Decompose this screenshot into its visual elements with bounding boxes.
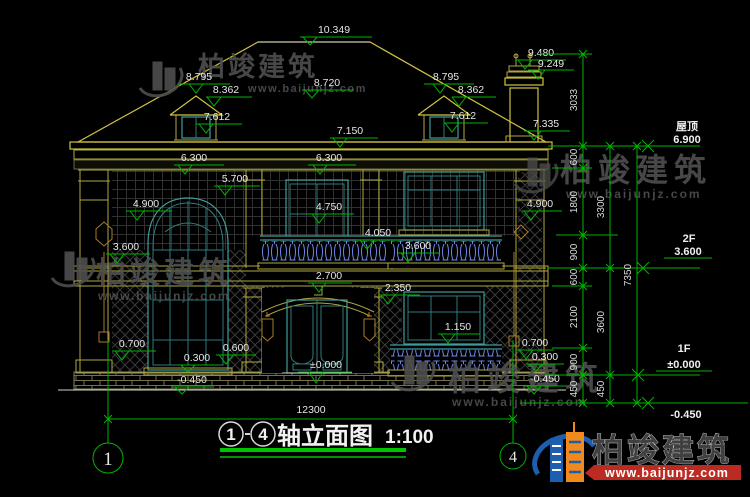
- dim-dormer-r-sill: 7.612: [450, 110, 476, 122]
- dim-dormer-r-top: 8.795: [433, 71, 459, 83]
- dim-f1-sill: 1.150: [445, 321, 471, 333]
- chain-450a: 450: [569, 380, 580, 397]
- page-title: 轴立面图: [277, 422, 373, 450]
- chain-1800: 1800: [569, 190, 580, 213]
- level-roof: 屋顶 6.900: [585, 120, 701, 152]
- logo-brand: 柏竣建筑: [592, 432, 732, 468]
- level-2f-label: 2F: [683, 233, 696, 245]
- level-1f-label: 1F: [678, 343, 691, 355]
- watermark-url: www.baijunjz.com: [247, 83, 367, 95]
- dim-left-ground: -0.450: [177, 374, 207, 386]
- chain-600a: 600: [569, 148, 580, 165]
- balcony-center: [258, 236, 392, 269]
- chain-3300: 3300: [596, 195, 607, 218]
- watermark-brand: 柏竣建筑: [448, 360, 604, 397]
- chain-900b: 900: [569, 353, 580, 370]
- window-1f-right: [404, 292, 484, 344]
- dim-left-sill: 0.700: [119, 338, 145, 350]
- eaves-band: [70, 142, 552, 170]
- dim-chimney-cap: 9.249: [538, 58, 564, 70]
- axis-bubble-1: 1: [93, 424, 123, 473]
- watermark-brand: 柏竣建筑: [96, 256, 232, 290]
- dim-right-head: 4.900: [527, 198, 553, 210]
- dim-f1-head: 2.350: [385, 282, 411, 294]
- watermark-url: www.baijunjz.com: [97, 289, 230, 303]
- chain-3033: 3033: [569, 88, 580, 111]
- title-block: 1 4 轴立面图 1:100: [219, 422, 434, 457]
- axis-number: 4: [509, 449, 517, 466]
- logo-tower-orange-icon: [566, 432, 584, 482]
- dim-total-width: 12300: [296, 404, 325, 416]
- dim-right-step: 0.300: [532, 351, 558, 363]
- level-ground-value: -0.450: [670, 409, 701, 421]
- dim-door-zero: ±0.000: [310, 359, 342, 371]
- watermark: 柏竣建筑 www.baijunjz.com: [140, 51, 367, 96]
- chain-900a: 900: [569, 243, 580, 260]
- dim-f2-sill: 4.750: [316, 201, 342, 213]
- axis-bubble-4: 4: [500, 420, 526, 469]
- dim-balcony-floor: 3.600: [405, 240, 431, 252]
- watermark: 柏竣建筑 www.baijunjz.com: [52, 252, 232, 303]
- dim-roof-mid: 8.720: [314, 77, 340, 89]
- dim-dormer-r-eave: 8.362: [458, 84, 484, 96]
- level-2f-value: 3.600: [674, 246, 702, 258]
- dim-dormer-l-eave: 8.362: [213, 84, 239, 96]
- chain-2100: 2100: [569, 305, 580, 328]
- dim-left-head: 4.900: [133, 198, 159, 210]
- logo-swoosh-icon: [535, 436, 594, 474]
- dim-roof-ridge: 10.349: [318, 24, 350, 36]
- dim-left-transom: 3.600: [113, 241, 139, 253]
- dim-dormer-l-sill: 7.612: [204, 111, 230, 123]
- site-logo: 柏竣建筑 www.baijunjz.com: [535, 422, 741, 482]
- logo-tower-blue-icon: [550, 438, 563, 482]
- drawing-scale: 1:100: [385, 427, 434, 448]
- dim-eave-mid: 7.150: [337, 125, 363, 137]
- dim-left-step: 0.300: [184, 352, 210, 364]
- watermark-url: www.baijunjz.com: [451, 395, 588, 409]
- dim-balcony-rail: 4.050: [365, 227, 391, 239]
- cad-viewport: 柏竣建筑 www.baijunjz.com 柏竣建筑 www.baijunjz.…: [0, 0, 750, 497]
- title-axis-start: 1: [226, 425, 235, 444]
- chain-450b: 450: [596, 380, 607, 397]
- dim-band-right: 6.300: [316, 152, 342, 164]
- level-roof-value: 6.900: [673, 134, 701, 146]
- dim-arch-top: 5.700: [222, 173, 248, 185]
- watermark-brand: 柏竣建筑: [198, 51, 318, 82]
- dim-left-base: 0.600: [223, 342, 249, 354]
- chain-7350: 7350: [623, 263, 634, 286]
- level-1f-value: ±0.000: [667, 359, 701, 371]
- chain-3600: 3600: [596, 310, 607, 333]
- dim-chimney-eave: 7.335: [533, 118, 559, 130]
- dim-right-sill: 0.700: [522, 337, 548, 349]
- title-axis-end: 4: [258, 425, 268, 444]
- dim-dormer-l-top: 8.795: [186, 71, 212, 83]
- elevation-drawing: 柏竣建筑 www.baijunjz.com 柏竣建筑 www.baijunjz.…: [0, 0, 750, 497]
- level-roof-label: 屋顶: [676, 120, 698, 133]
- axis-number: 1: [103, 449, 113, 470]
- chain-600b: 600: [569, 268, 580, 285]
- dim-entry-arch: 2.700: [316, 270, 342, 282]
- logo-url: www.baijunjz.com: [604, 466, 729, 480]
- dim-band-left: 6.300: [181, 152, 207, 164]
- watermark-url: www.baijunjz.com: [565, 187, 702, 201]
